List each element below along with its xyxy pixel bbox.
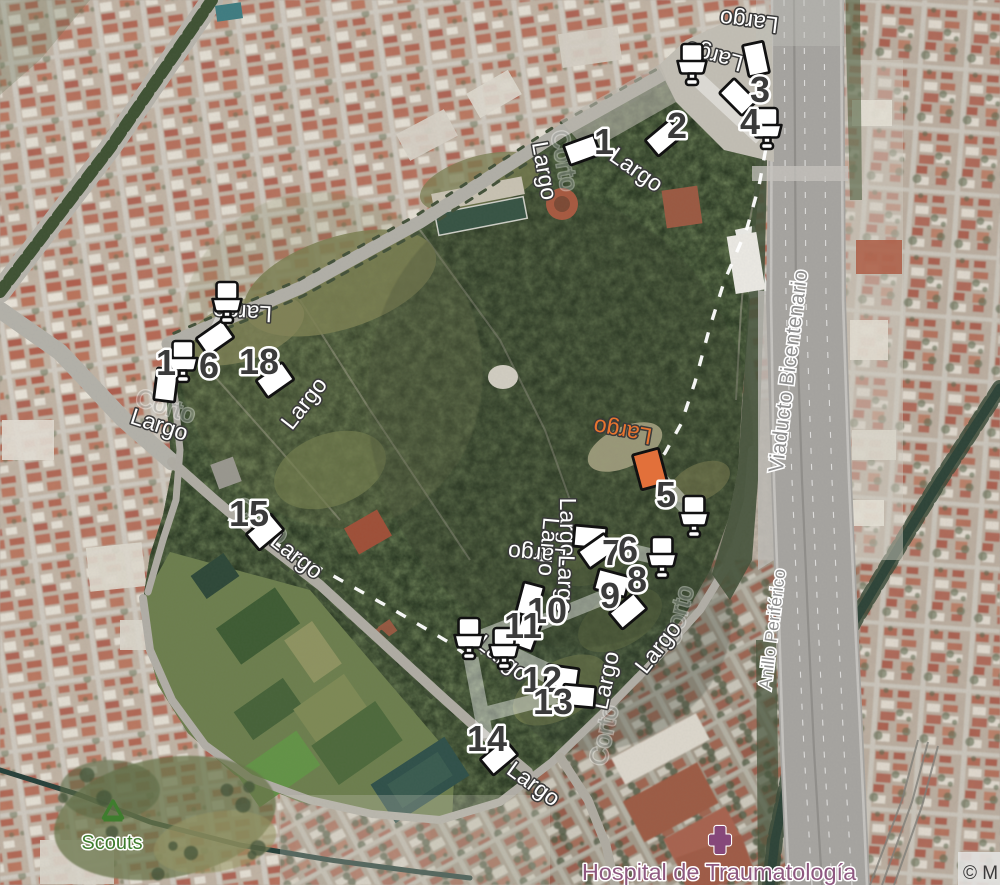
svg-text:13: 13 — [533, 681, 573, 722]
svg-text:9: 9 — [600, 575, 620, 616]
svg-text:18: 18 — [239, 341, 279, 382]
svg-text:4: 4 — [740, 101, 760, 142]
svg-text:15: 15 — [229, 493, 269, 534]
svg-text:8: 8 — [627, 559, 647, 600]
svg-text:Hospital de Traumatología: Hospital de Traumatología — [582, 859, 857, 885]
svg-text:11: 11 — [504, 605, 542, 646]
svg-text:Scouts: Scouts — [81, 832, 142, 854]
svg-text:5: 5 — [656, 474, 676, 515]
svg-text:1: 1 — [156, 342, 176, 383]
svg-text:1: 1 — [594, 121, 614, 162]
svg-text:6: 6 — [199, 345, 219, 386]
svg-text:© M: © M — [963, 863, 998, 884]
svg-text:14: 14 — [467, 718, 507, 759]
svg-text:2: 2 — [667, 105, 687, 146]
